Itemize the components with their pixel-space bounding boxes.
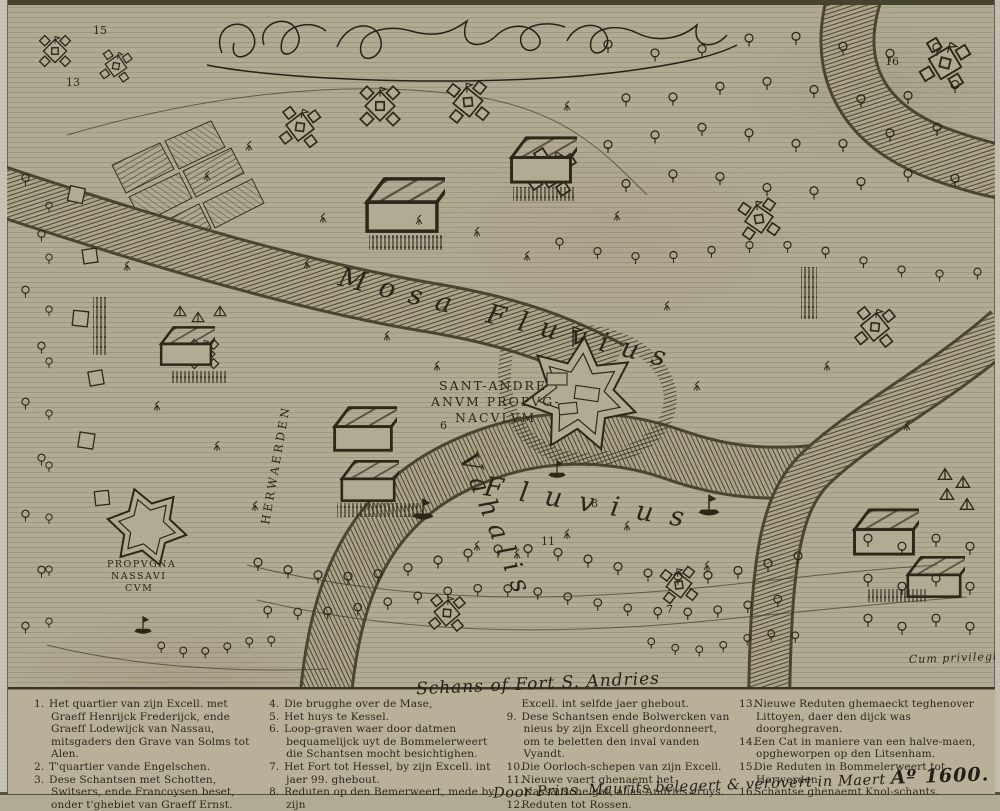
legend-column-2: 4.Die brugghe over de Mase,5.Het huys te…	[269, 698, 506, 792]
pike-block	[369, 235, 443, 250]
legend-item: 5.Het huys te Kessel.	[269, 711, 498, 724]
legend-column-1: 1.Het quartier van zijn Excell. met Grae…	[22, 698, 269, 792]
legend-item-text: Het quartier van zijn Excell. met Graeff…	[49, 698, 250, 760]
legend-item-number: 14.	[739, 736, 754, 749]
legend-item: 4.Die brugghe over de Mase,	[269, 698, 498, 711]
legend-item-number: 9.	[506, 711, 521, 724]
legend-item: 2.T'quartier vande Engelschen.	[34, 761, 261, 774]
legend-item: 8.Reduten op den Bemerweert, mede by zij…	[269, 786, 498, 811]
legend-item: 1.Het quartier van zijn Excell. met Grae…	[34, 698, 261, 761]
legend-item-text: Dese Schantsen met Schotten, Switsers, e…	[49, 774, 235, 811]
legend-item: 7.Het Fort tot Hessel, by zijn Excell. i…	[269, 761, 498, 786]
legend-item-number: 7.	[269, 761, 284, 774]
legend-item-number: 5.	[269, 711, 284, 724]
engraved-map: 15131668117 Mosa Fluvius Vahalis Fluvius…	[7, 5, 995, 687]
legend-item: 12.Reduten tot Rossen.	[506, 799, 731, 811]
legend-item-text: T'quartier vande Engelschen.	[49, 761, 210, 773]
map-marker-number: 15	[93, 24, 107, 37]
legend-item: 14.Een Cat in maniere van een halve-maen…	[739, 736, 983, 761]
map-plate: 15131668117 Mosa Fluvius Vahalis Fluvius…	[7, 5, 995, 687]
legend-item-number: 13.	[739, 698, 754, 711]
legend-item-text: Een Cat in maniere van een halve-maen, o…	[754, 736, 976, 761]
map-marker-number: 7	[666, 603, 673, 616]
pike-block	[93, 297, 108, 355]
legend-item: 10.Die Oorloch-schepen van zijn Excell.	[506, 761, 731, 774]
legend-item-number: 3.	[34, 774, 49, 787]
legend-item: Excell. int selfde jaer ghebout.	[506, 698, 731, 711]
legend-item-number: 1.	[34, 698, 49, 711]
legend-item: 13.Nieuwe Reduten ghemaeckt teghenover L…	[739, 698, 983, 736]
legend-item: 6.Loop-graven waer door datmen bequameli…	[269, 723, 498, 761]
legend-item-text: Die brugghe over de Mase,	[284, 698, 432, 710]
map-marker-number: 13	[66, 76, 80, 89]
pike-block	[801, 267, 817, 319]
pike-block	[867, 589, 927, 602]
legend-item-text: Nieuwe Reduten ghemaeckt teghenover Litt…	[754, 698, 974, 735]
legend-item-text: Loop-graven waer door datmen bequamelijc…	[284, 723, 487, 760]
legend-item-text: Die Oorloch-schepen van zijn Excell.	[521, 761, 721, 773]
legend-item-text: Reduten tot Rossen.	[521, 799, 631, 811]
legend-item-number: 4.	[269, 698, 284, 711]
legend-item-text: Dese Schantsen ende Bolwercken van nieus…	[521, 711, 729, 761]
pike-block	[513, 187, 575, 201]
legend-item: 3.Dese Schantsen met Schotten, Switsers,…	[34, 774, 261, 811]
legend-item-number: 10.	[506, 761, 521, 774]
map-marker-number: 11	[541, 535, 555, 548]
legend-item-text: Het Fort tot Hessel, by zijn Excell. int…	[284, 761, 490, 786]
attribution-year: Aº 1600.	[890, 764, 989, 789]
legend-item-number: 15.	[739, 761, 754, 774]
legend-item-number: 2.	[34, 761, 49, 774]
pike-block	[337, 503, 421, 517]
legend-item-number: 6.	[269, 723, 284, 736]
legend-item-text: Het huys te Kessel.	[284, 711, 389, 723]
legend-item: 9.Dese Schantsen ende Bolwercken van nie…	[506, 711, 731, 761]
legend-panel: Schans of Fort S. Andries 1.Het quartier…	[8, 687, 995, 794]
legend-item-text: Excell. int selfde jaer ghebout.	[521, 698, 689, 710]
map-marker-number: 16	[885, 55, 899, 68]
legend-item-number: 8.	[269, 786, 284, 799]
map-marker-number: 6	[440, 419, 447, 432]
legend-item-text: Reduten op den Bemerweert, mede by zijn	[284, 786, 494, 811]
pike-block	[171, 371, 227, 383]
engraved-siege-map-scan: { "map": { "labels": { "fort_central_lin…	[0, 0, 1000, 795]
